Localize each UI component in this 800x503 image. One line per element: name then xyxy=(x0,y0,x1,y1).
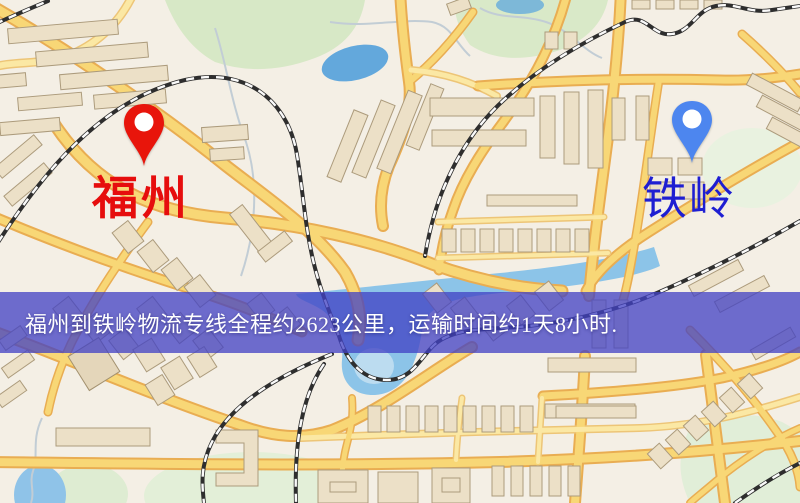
map-view: 福州 铁岭 福州到铁岭物流专线全程约2623公里，运输时间约1天8小时. xyxy=(0,0,800,503)
origin-city-label: 福州 xyxy=(56,176,226,222)
origin-pin-icon xyxy=(121,102,167,168)
route-info-banner: 福州到铁岭物流专线全程约2623公里，运输时间约1天8小时. xyxy=(0,292,800,353)
destination-city-label: 铁岭 xyxy=(604,177,774,222)
destination-pin-icon xyxy=(669,99,715,165)
map-background xyxy=(0,0,800,503)
route-info-text: 福州到铁岭物流专线全程约2623公里，运输时间约1天8小时. xyxy=(25,307,618,339)
